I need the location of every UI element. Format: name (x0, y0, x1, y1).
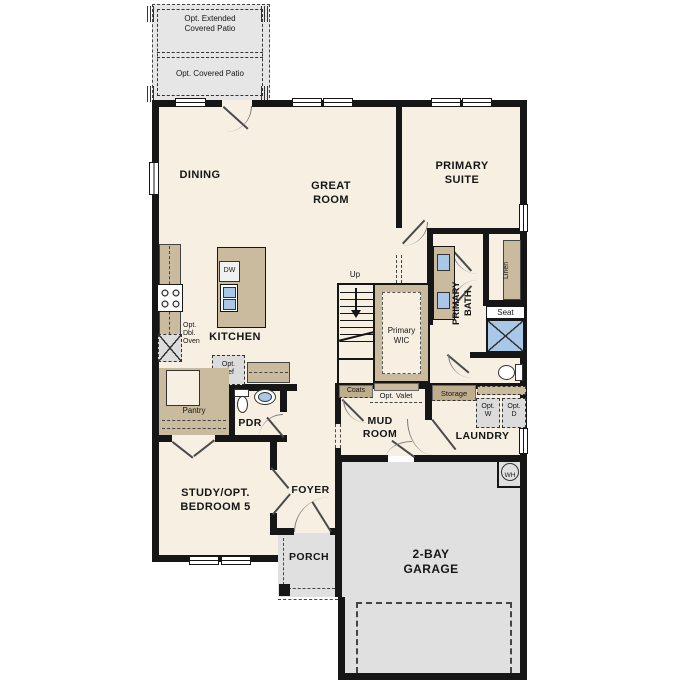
porch-step-line (283, 588, 335, 589)
opt-valet-shelf (374, 383, 419, 391)
linen-label: Linen (503, 244, 521, 296)
pdr-sink-basin (258, 392, 272, 402)
window (519, 204, 528, 232)
great-room-label: GREAT ROOM (295, 180, 367, 208)
wd-shelf (477, 386, 526, 395)
sink-basin (223, 287, 236, 298)
opt-double-oven (158, 334, 182, 362)
under-stair-closet (337, 358, 376, 385)
wall (280, 384, 287, 412)
floor-plan: Opt. Extended Covered Patio Opt. Covered… (0, 0, 687, 687)
dining-label: DINING (165, 169, 235, 183)
wh-label: WH (505, 472, 516, 479)
patio-column (261, 6, 269, 22)
garage-label: 2-BAY GARAGE (376, 547, 486, 577)
wc-toilet-tank (515, 364, 523, 381)
coats-label: Coats (347, 387, 365, 394)
laundry-label: LAUNDRY (445, 430, 520, 443)
coats-closet: Coats (339, 385, 373, 398)
patio-divider (157, 52, 263, 58)
cased-opening (396, 255, 402, 283)
window (221, 556, 251, 565)
window (431, 98, 461, 107)
sink-basin (223, 299, 236, 310)
patio-extended-label: Opt. Extended Covered Patio (157, 14, 263, 34)
wall (152, 435, 172, 442)
porch-step-line (283, 538, 284, 590)
wall (335, 455, 388, 462)
storage-label: Storage (441, 389, 467, 398)
wall (277, 528, 294, 535)
pantry-label: Pantry (163, 406, 225, 416)
window (189, 556, 219, 565)
stairs-up-label: Up (340, 270, 370, 280)
wc-toilet-bowl (498, 365, 515, 380)
porch-step-line (278, 599, 338, 600)
primary-wic-label: Primary WIC (374, 326, 429, 346)
primary-suite-label: PRIMARY SUITE (428, 160, 496, 188)
wall (270, 440, 277, 470)
garage-door-outline (356, 602, 512, 673)
wall (427, 228, 527, 234)
opt-washer-label: Opt. W (476, 403, 500, 419)
opt-dryer-label: Opt. D (502, 403, 526, 419)
wall (425, 389, 432, 420)
cooktop-icon (157, 284, 183, 312)
wall (270, 513, 277, 535)
porch-label: PORCH (283, 551, 335, 564)
dishwasher-label: DW (219, 267, 240, 275)
study-label: STUDY/OPT. BEDROOM 5 (168, 487, 263, 515)
wall (338, 597, 345, 680)
pdr-toilet-bowl (237, 396, 248, 413)
foyer-label: FOYER (283, 484, 338, 497)
pdr-label: PDR (230, 417, 270, 430)
seat-label: Seat (486, 308, 525, 318)
vanity-sink (437, 292, 450, 309)
water-heater: WH (501, 463, 519, 481)
primary-bath-label: PRIMARY BATH (451, 268, 477, 338)
wall (335, 455, 342, 597)
wall (396, 100, 402, 228)
opt-valet-label: Opt. Valet (370, 392, 422, 403)
wall (483, 234, 489, 302)
window (175, 98, 206, 107)
cased-opening (335, 424, 341, 448)
wall (330, 528, 342, 535)
window (323, 98, 353, 107)
pantry-shelf-line (162, 420, 226, 421)
window (462, 98, 492, 107)
mud-room-label: MUD ROOM (350, 415, 410, 441)
storage-shelf: Storage (432, 385, 476, 401)
counter-line (249, 372, 288, 373)
pantry-shelf-line (162, 428, 226, 429)
vanity-sink (437, 254, 450, 271)
pantry-walkin (166, 370, 200, 406)
patio-covered-label: Opt. Covered Patio (157, 69, 263, 79)
stair-arrow-head (351, 310, 361, 318)
window (149, 162, 159, 195)
stair-arrow-line (355, 288, 357, 311)
wall (338, 673, 527, 680)
window (519, 428, 528, 454)
patio-column (147, 6, 155, 22)
kitchen-label: KITCHEN (200, 331, 270, 345)
window (292, 98, 322, 107)
shower (486, 319, 525, 353)
porch-column (279, 584, 290, 596)
